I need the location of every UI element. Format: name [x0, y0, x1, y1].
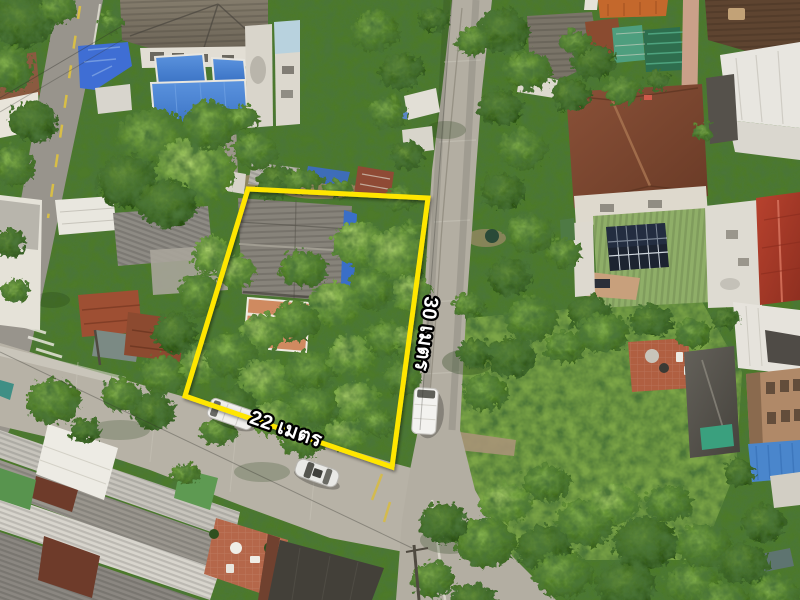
aerial-photo-canvas: 30 เมตร 22 เมตร [0, 0, 800, 600]
white-roof-lower-right [733, 302, 800, 375]
solar-panel-array [606, 223, 669, 271]
brown-hip-roof-house [566, 84, 708, 226]
teal-awning [700, 424, 734, 450]
tan-building-right [746, 368, 800, 450]
aerial-photo: 30 เมตร 22 เมตร [0, 0, 800, 600]
terracotta-patio-right [628, 338, 692, 392]
white-flat-roofs [705, 200, 762, 308]
red-tile-roof-right [756, 192, 800, 305]
